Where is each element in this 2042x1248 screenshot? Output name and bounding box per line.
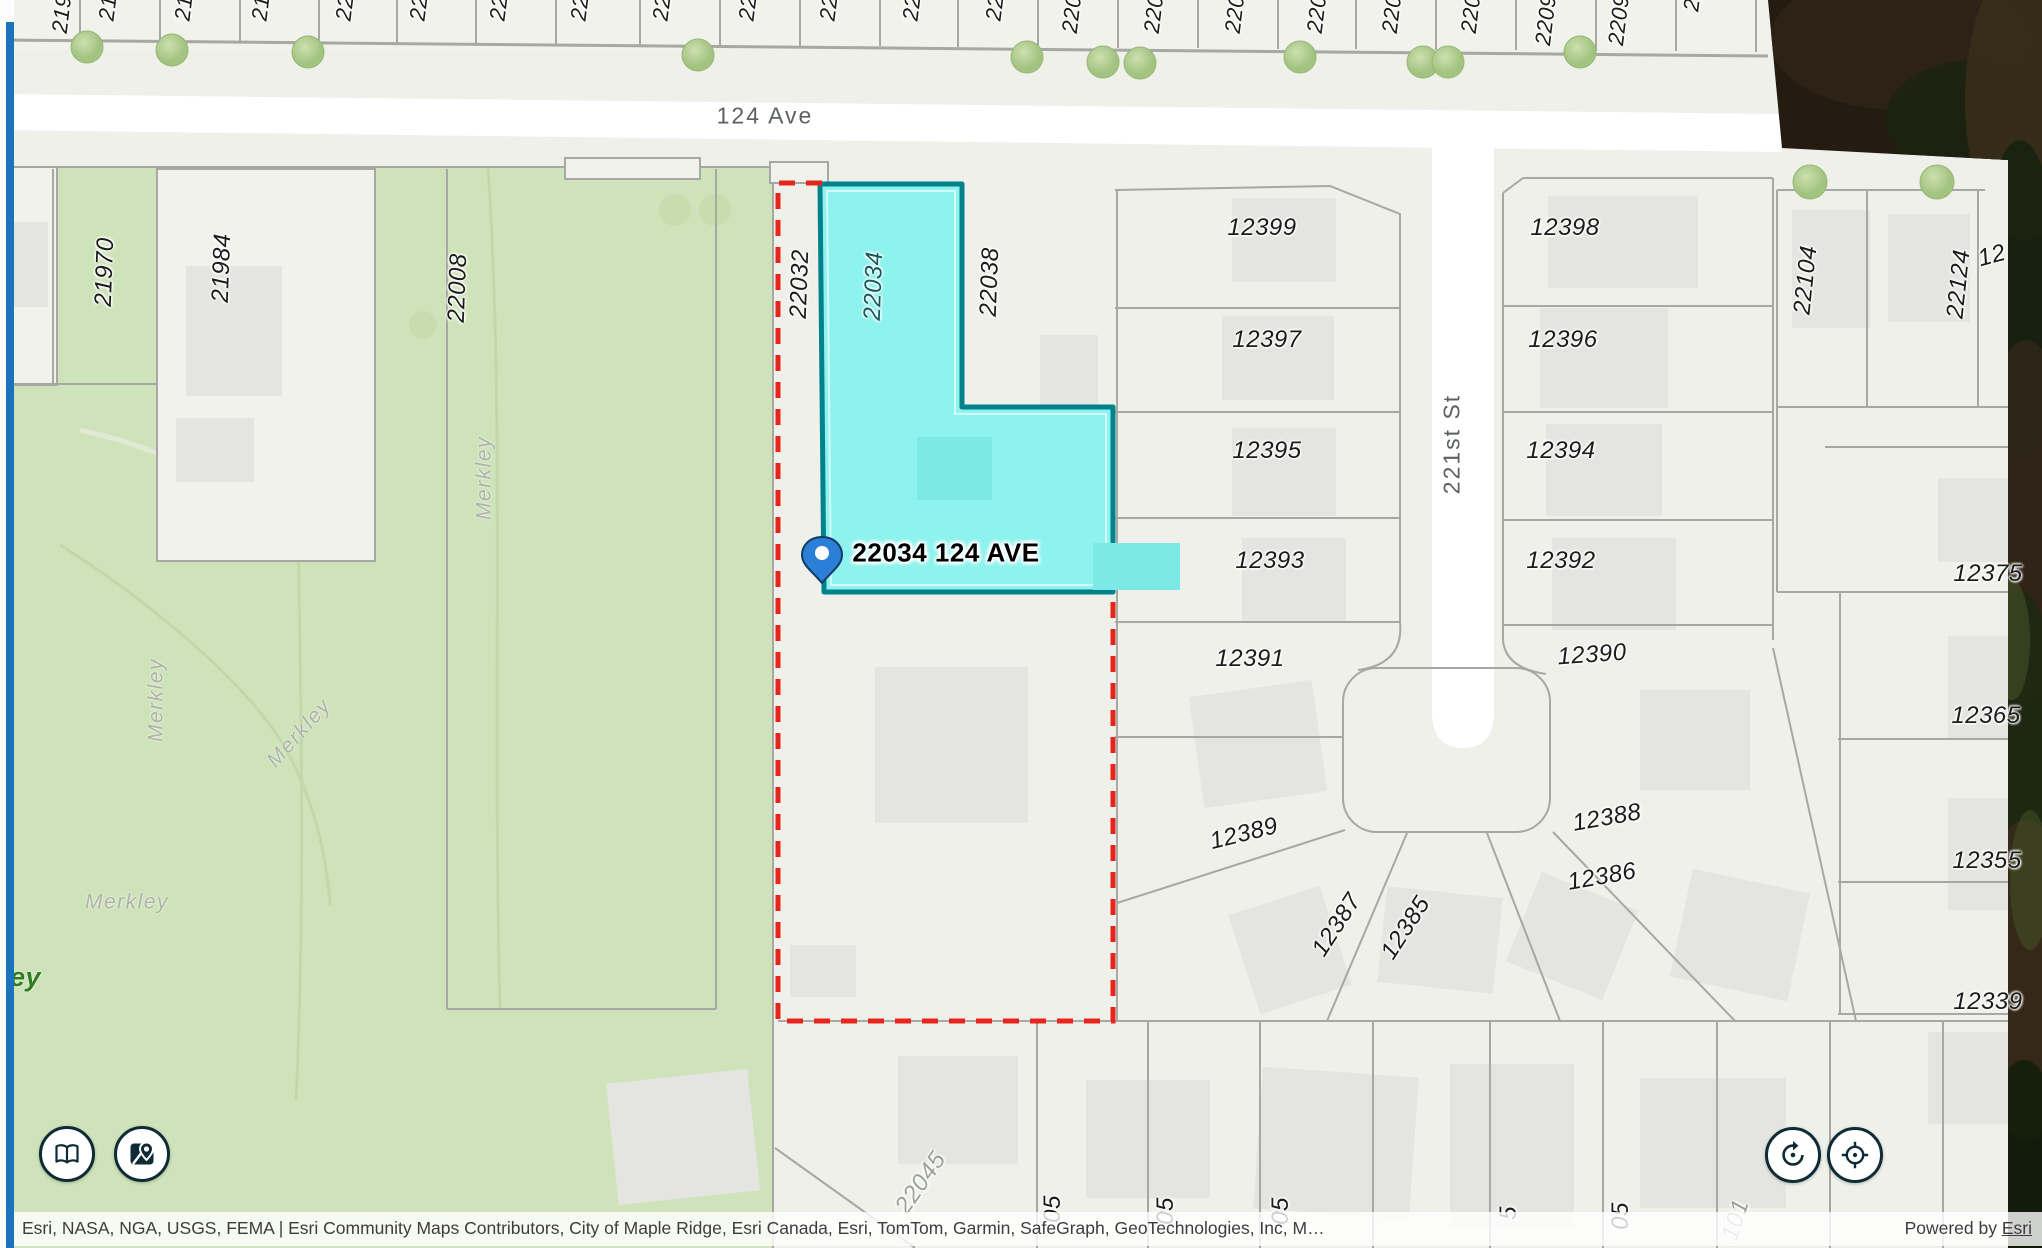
parcel-label: 220 bbox=[1059, 0, 1085, 34]
parcel-label: 12365 bbox=[1951, 704, 2020, 728]
parcel-label: 12397 bbox=[1232, 328, 1301, 352]
street-label-124-ave: 124 Ave bbox=[717, 105, 814, 128]
parcel-label: 12387 bbox=[1308, 889, 1366, 960]
parcel-label: 12393 bbox=[1235, 549, 1304, 573]
parcel-label: 12389 bbox=[1208, 814, 1281, 854]
parcel-label: 12386 bbox=[1566, 859, 1638, 895]
parcel-label: 2209 bbox=[1532, 0, 1560, 47]
parcel-label: 12395 bbox=[1232, 439, 1301, 463]
parcel-label: 22124 bbox=[1943, 248, 1974, 319]
parcel-label: 220 bbox=[1379, 0, 1405, 34]
panel-edge-accent bbox=[6, 22, 14, 1248]
selected-address-callout: 22034 124 AVE bbox=[852, 538, 1039, 569]
parcel-label: 220 bbox=[1222, 0, 1248, 34]
parcel-label: 220 bbox=[1458, 0, 1484, 34]
parcel-label: 22104 bbox=[1790, 244, 1821, 315]
parcel-label: 12390 bbox=[1557, 641, 1628, 670]
parcel-label: 22 bbox=[487, 0, 512, 22]
street-label-merkley: Merkley bbox=[85, 892, 169, 913]
parcel-label: 22038 bbox=[977, 247, 1003, 317]
parcel-label: 22008 bbox=[445, 253, 471, 323]
parcel-label: 22 bbox=[817, 0, 842, 22]
parcel-label: 21 bbox=[172, 0, 197, 22]
parcel-label: 220 bbox=[1304, 0, 1330, 34]
street-label-merkley: Merkley bbox=[146, 658, 167, 742]
parcel-label: 21 bbox=[96, 0, 121, 22]
parcel-label: 12 bbox=[1976, 241, 2009, 271]
parcel-label: 12339 bbox=[1953, 990, 2022, 1014]
parcel-label: 220 bbox=[1141, 0, 1167, 34]
parcel-label: 22 bbox=[650, 0, 675, 22]
parcel-label: 12385 bbox=[1377, 892, 1435, 963]
parcel-label: 22 bbox=[983, 0, 1008, 22]
parcel-label: 2209 bbox=[1605, 0, 1633, 47]
parcel-label: 12394 bbox=[1526, 439, 1595, 463]
parcel-label: 22045 bbox=[891, 1148, 950, 1218]
parcel-label: 12396 bbox=[1528, 328, 1597, 352]
parcel-label: 12398 bbox=[1530, 216, 1599, 240]
attribution-sources: Esri, NASA, NGA, USGS, FEMA | Esri Commu… bbox=[22, 1220, 1325, 1238]
parcel-label: 219 bbox=[49, 0, 75, 34]
street-label-merkley: Merkley bbox=[263, 695, 335, 771]
parcel-label: 21970 bbox=[92, 237, 118, 307]
street-label-221st-st: 221st St bbox=[1441, 394, 1464, 494]
parcel-label: 12375 bbox=[1953, 562, 2022, 586]
parcel-label: 22 bbox=[736, 0, 761, 22]
parcel-label: 12391 bbox=[1215, 647, 1284, 671]
parcel-label: 12388 bbox=[1571, 800, 1643, 836]
parcel-label: 12355 bbox=[1952, 849, 2021, 873]
selected-parcel-label: 22034 bbox=[861, 251, 887, 321]
parcel-label: 2 bbox=[1680, 0, 1703, 13]
street-label-merkley: Merkley bbox=[474, 436, 495, 520]
parcel-label: 22032 bbox=[787, 249, 813, 319]
parcel-label: 22 bbox=[407, 0, 432, 22]
map-canvas[interactable]: 219 21 21 21 22 22 22 22 22 22 22 22 22 … bbox=[0, 0, 2042, 1248]
parcel-label: 12392 bbox=[1526, 549, 1595, 573]
parcel-label: 12399 bbox=[1227, 216, 1296, 240]
parcel-label: 21984 bbox=[209, 233, 235, 303]
powered-by: Powered by Esri bbox=[1905, 1220, 2032, 1238]
parcel-label: 22 bbox=[333, 0, 358, 22]
powered-by-text: Powered by bbox=[1905, 1218, 2002, 1238]
parcel-label: 21 bbox=[249, 0, 274, 22]
esri-link[interactable]: Esri bbox=[2002, 1218, 2032, 1238]
page-edge-cap bbox=[6, 0, 14, 22]
parcel-label: 22 bbox=[900, 0, 925, 22]
attribution-bar: Esri, NASA, NGA, USGS, FEMA | Esri Commu… bbox=[0, 1212, 2042, 1246]
map-labels: 219 21 21 21 22 22 22 22 22 22 22 22 22 … bbox=[0, 0, 2042, 1248]
parcel-label: 22 bbox=[568, 0, 593, 22]
